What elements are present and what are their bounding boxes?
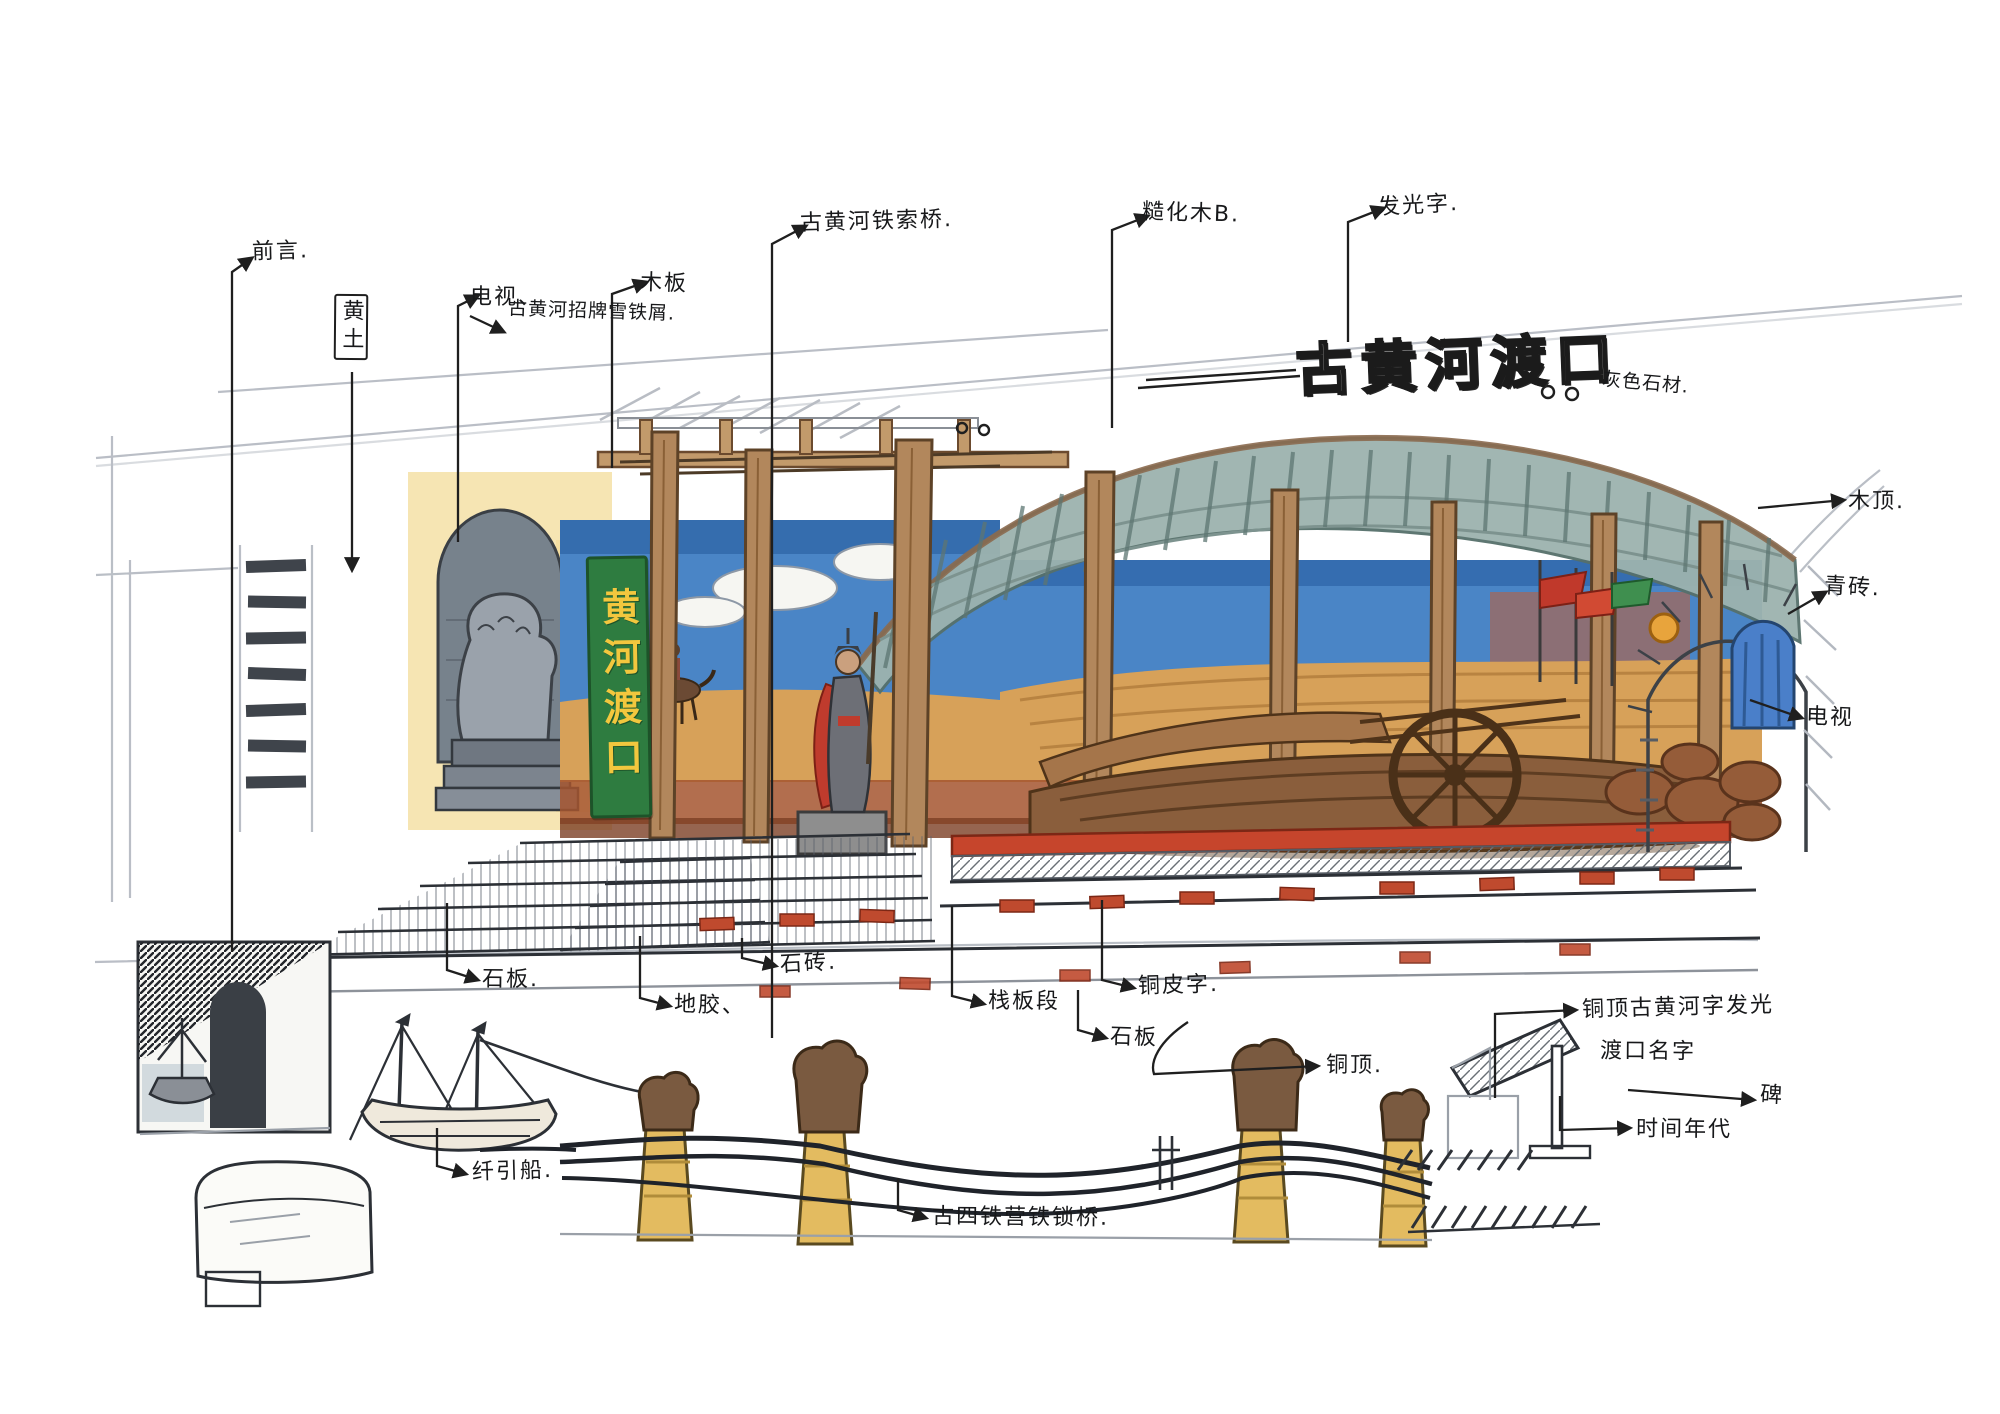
callout-stele: 碑: [1759, 1081, 1784, 1110]
callout-glowing-letters: 发光字.: [1377, 190, 1459, 222]
sketch-canvas: 古黄河渡口 灰色石材. 黄河渡口 前言. 电视、 黄土 木板 古黄河招牌雪铁屑.…: [0, 0, 2000, 1414]
callout-loess: 黄土: [334, 294, 368, 360]
yellow-river-ferry-sign: 黄河渡口: [586, 555, 653, 818]
lantern: [1650, 614, 1678, 642]
callout-foreword: 前言.: [252, 237, 310, 266]
wall-register-slats: [246, 559, 306, 789]
tow-boat-sketch: [350, 1014, 642, 1150]
dark-vignette-sketch: [138, 942, 330, 1134]
sketch-drawing: [0, 0, 2000, 1414]
bottom-sketches: [138, 942, 1600, 1306]
callout-grey-brick: 青砖.: [1823, 573, 1881, 603]
callout-tow-boat: 纤引船.: [472, 1157, 554, 1187]
callout-stone-brick: 石砖.: [779, 949, 837, 979]
callout-copper-top: 铜顶.: [1326, 1052, 1383, 1080]
callout-plank-section: 栈板段: [988, 988, 1060, 1016]
callout-date-era: 时间年代: [1636, 1116, 1732, 1144]
sign-text: 黄河渡口: [598, 587, 639, 788]
callout-stone-slab-left: 石板.: [482, 966, 539, 994]
callout-stone-slab-mid: 石板: [1110, 1023, 1159, 1052]
callout-roughened-wood: 糙化木B.: [1142, 198, 1241, 229]
callout-wood-plank-top: 木板: [640, 269, 689, 298]
callout-wood-roof: 木顶.: [1848, 488, 1905, 516]
callout-iron-chain-bridge: 古黄河铁索桥.: [800, 206, 954, 237]
main-title: 古黄河渡口: [1295, 332, 1622, 400]
stone-pillow-sketch: [196, 1162, 372, 1306]
callout-ancient-chain-bridge: 古四铁营铁锁桥.: [932, 1203, 1109, 1232]
callout-tv-right: 电视: [1806, 703, 1855, 732]
callout-floor-vinyl: 地胶、: [674, 991, 747, 1021]
callout-copper-top-sign-line1: 铜顶古黄河字发光: [1582, 991, 1775, 1024]
callout-copper-letters: 铜皮字.: [1138, 971, 1220, 1001]
callout-copper-top-sign-line2: 渡口名字: [1600, 1038, 1696, 1066]
